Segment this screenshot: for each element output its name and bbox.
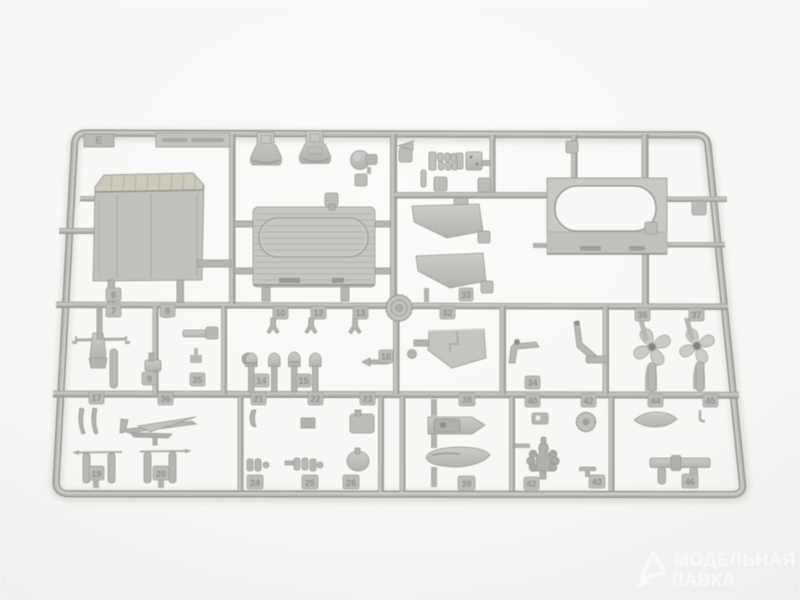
svg-text:35: 35 xyxy=(192,375,202,385)
svg-text:19: 19 xyxy=(91,469,101,479)
svg-text:26: 26 xyxy=(346,478,356,488)
svg-text:E: E xyxy=(95,135,102,147)
svg-text:42: 42 xyxy=(583,396,593,406)
svg-text:37: 37 xyxy=(691,310,701,320)
svg-text:13: 13 xyxy=(355,308,365,318)
svg-text:44: 44 xyxy=(650,396,660,406)
svg-text:33: 33 xyxy=(461,290,471,300)
svg-text:17: 17 xyxy=(91,393,101,403)
svg-text:8: 8 xyxy=(165,306,170,316)
svg-text:25: 25 xyxy=(305,478,315,488)
svg-text:46: 46 xyxy=(685,477,695,487)
svg-text:20: 20 xyxy=(156,469,166,479)
svg-text:ЛАВКА: ЛАВКА xyxy=(671,570,736,590)
svg-text:10: 10 xyxy=(275,308,285,318)
svg-text:23: 23 xyxy=(362,394,372,404)
svg-text:38: 38 xyxy=(462,395,472,405)
svg-text:16: 16 xyxy=(381,352,391,362)
svg-text:21: 21 xyxy=(253,394,263,404)
svg-text:7: 7 xyxy=(111,306,116,316)
svg-text:6: 6 xyxy=(111,290,116,300)
svg-text:МОДЕЛЬНАЯ: МОДЕЛЬНАЯ xyxy=(674,550,796,570)
svg-text:22: 22 xyxy=(310,394,320,404)
svg-text:14: 14 xyxy=(256,376,266,386)
svg-text:15: 15 xyxy=(298,376,308,386)
svg-text:24: 24 xyxy=(250,478,260,488)
svg-text:45: 45 xyxy=(705,396,715,406)
svg-text:9: 9 xyxy=(147,374,152,384)
svg-text:42: 42 xyxy=(526,479,536,489)
svg-text:36: 36 xyxy=(637,310,647,320)
svg-text:12: 12 xyxy=(313,308,323,318)
svg-text:39: 39 xyxy=(461,479,471,489)
svg-text:34: 34 xyxy=(527,378,537,388)
svg-text:40: 40 xyxy=(527,396,537,406)
svg-text:43: 43 xyxy=(592,477,602,487)
svg-text:32: 32 xyxy=(442,308,452,318)
svg-text:36: 36 xyxy=(160,394,170,404)
